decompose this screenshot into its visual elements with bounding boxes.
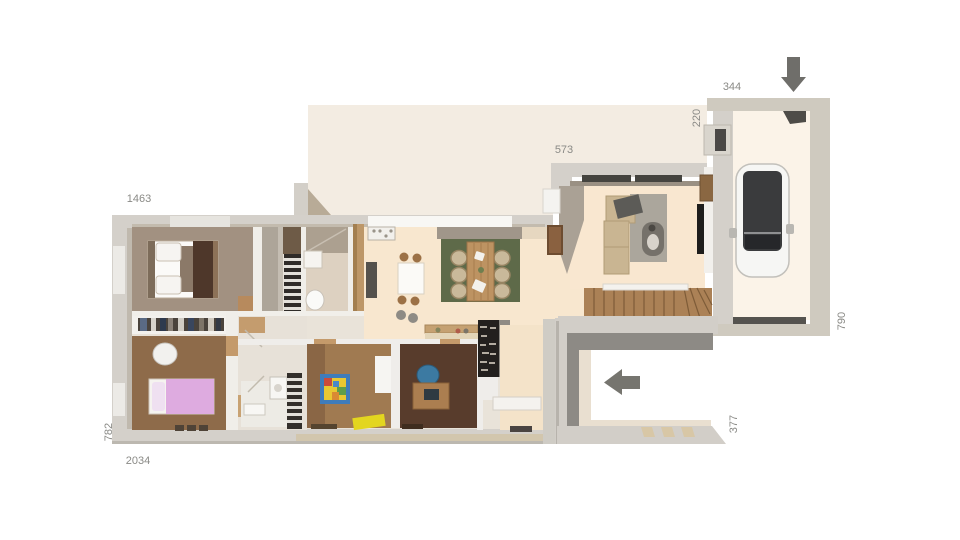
svg-text:782: 782 (103, 423, 115, 441)
svg-text:790: 790 (836, 312, 848, 330)
svg-text:2034: 2034 (126, 455, 150, 467)
svg-text:220: 220 (691, 109, 703, 127)
svg-text:573: 573 (555, 144, 573, 156)
svg-text:1463: 1463 (127, 193, 151, 205)
svg-text:344: 344 (723, 81, 741, 93)
svg-text:377: 377 (728, 415, 740, 433)
